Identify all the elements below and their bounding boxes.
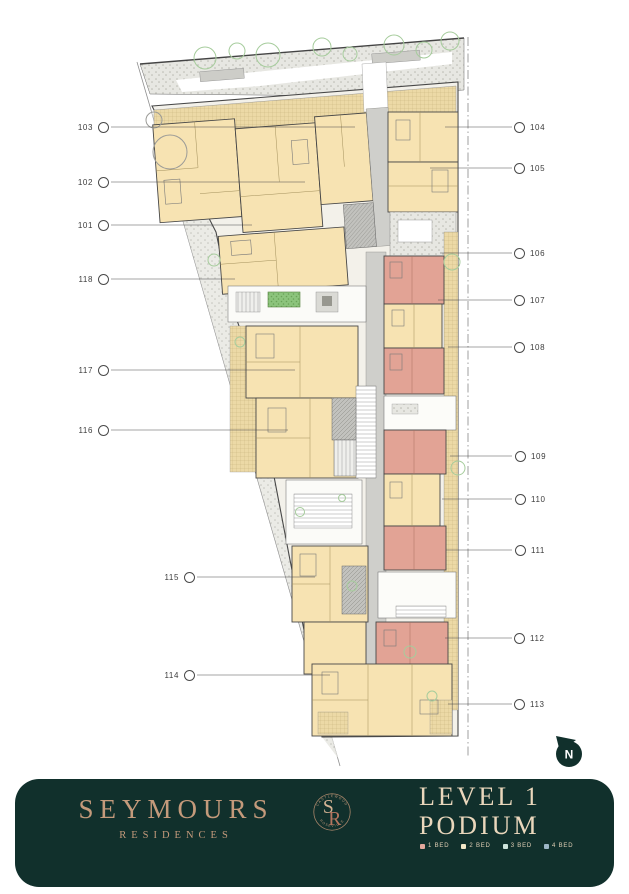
callout-101: 101 <box>57 219 109 231</box>
callout-circle <box>98 220 109 231</box>
callout-circle <box>514 633 525 644</box>
callout-circle <box>98 425 109 436</box>
callout-103: 103 <box>57 121 109 133</box>
legend-label: 3 BED <box>511 843 532 849</box>
units-right-strip <box>366 232 458 710</box>
legend-item-3bed: 3 BED <box>503 843 532 849</box>
legend-label: 2 BED <box>469 843 490 849</box>
legend-swatch-2bed <box>461 844 466 849</box>
north-label: N <box>565 748 574 762</box>
legend-item-1bed: 1 BED <box>420 843 449 849</box>
callout-circle <box>514 122 525 133</box>
callout-110: 110 <box>515 493 546 505</box>
north-marker: N <box>550 730 588 768</box>
footer-bar: SEYMOURS RESIDENCES CASTLEWOOD ROSEVILLE… <box>15 779 614 887</box>
callout-circle <box>514 342 525 353</box>
entry-walk <box>362 62 388 112</box>
brand-name: SEYMOURS <box>71 794 281 825</box>
callout-circle <box>184 572 195 583</box>
monogram-letter-r: R <box>328 809 342 830</box>
legend-swatch-4bed <box>544 844 549 849</box>
callout-105: 105 <box>514 162 545 174</box>
unit-legend: 1 BED 2 BED 3 BED 4 BED <box>420 843 573 849</box>
callout-106: 106 <box>514 247 545 259</box>
callout-circle <box>98 365 109 376</box>
legend-item-4bed: 4 BED <box>544 843 573 849</box>
brand-subtitle: RESIDENCES <box>71 830 281 841</box>
legend-label: 4 BED <box>552 843 573 849</box>
callout-circle <box>98 177 109 188</box>
courtyard-central <box>228 286 366 322</box>
callout-104: 104 <box>514 121 545 133</box>
callout-109: 109 <box>515 450 546 462</box>
callout-circle <box>514 248 525 259</box>
callout-118: 118 <box>57 273 109 285</box>
floor-plan: 103 102 101 118 117 116 115 114 104 105 … <box>0 0 629 780</box>
brand-monogram: CASTLEWOOD ROSEVILLE S R <box>304 784 360 840</box>
callout-107: 107 <box>514 294 545 306</box>
callout-114: 114 <box>143 669 195 681</box>
callout-102: 102 <box>57 176 109 188</box>
page-title: LEVEL 1 PODIUM <box>419 783 541 840</box>
legend-item-2bed: 2 BED <box>461 843 490 849</box>
callout-circle <box>515 451 526 462</box>
callout-circle <box>184 670 195 681</box>
callout-circle <box>514 163 525 174</box>
callout-circle <box>98 274 109 285</box>
callout-116: 116 <box>57 424 109 436</box>
brand-block: SEYMOURS RESIDENCES <box>71 794 281 841</box>
callout-circle <box>515 545 526 556</box>
units-mid-cluster <box>230 326 376 478</box>
title-line-1: LEVEL 1 <box>419 783 541 812</box>
legend-label: 1 BED <box>428 843 449 849</box>
callout-111: 111 <box>515 544 545 556</box>
callout-circle <box>515 494 526 505</box>
callout-circle <box>514 295 525 306</box>
callout-117: 117 <box>57 364 109 376</box>
callout-115: 115 <box>143 571 195 583</box>
title-line-2: PODIUM <box>419 812 541 841</box>
callout-113: 113 <box>514 698 545 710</box>
legend-swatch-1bed <box>420 844 425 849</box>
callout-circle <box>98 122 109 133</box>
callout-112: 112 <box>514 632 545 644</box>
callout-108: 108 <box>514 341 545 353</box>
callout-circle <box>514 699 525 710</box>
floor-plan-drawing <box>0 0 629 780</box>
legend-swatch-3bed <box>503 844 508 849</box>
